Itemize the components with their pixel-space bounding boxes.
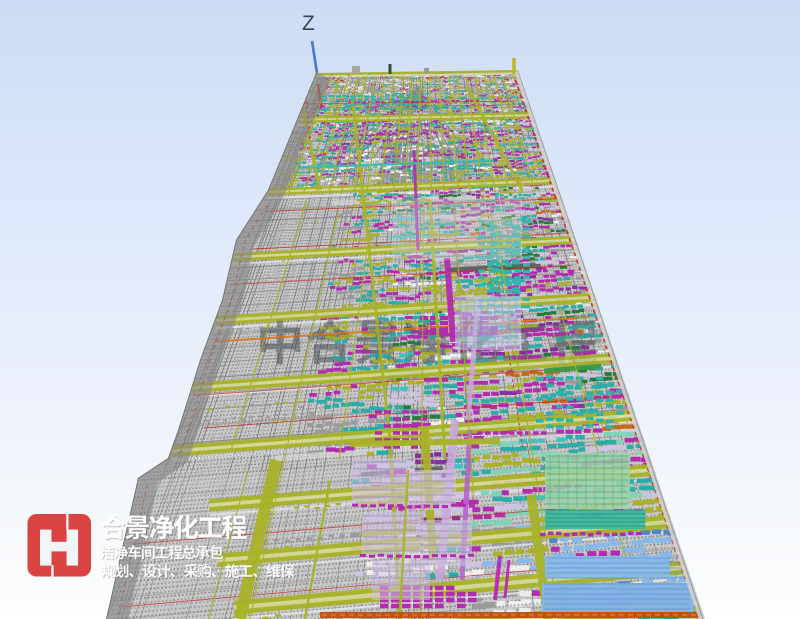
- svg-text:Z: Z: [302, 12, 315, 35]
